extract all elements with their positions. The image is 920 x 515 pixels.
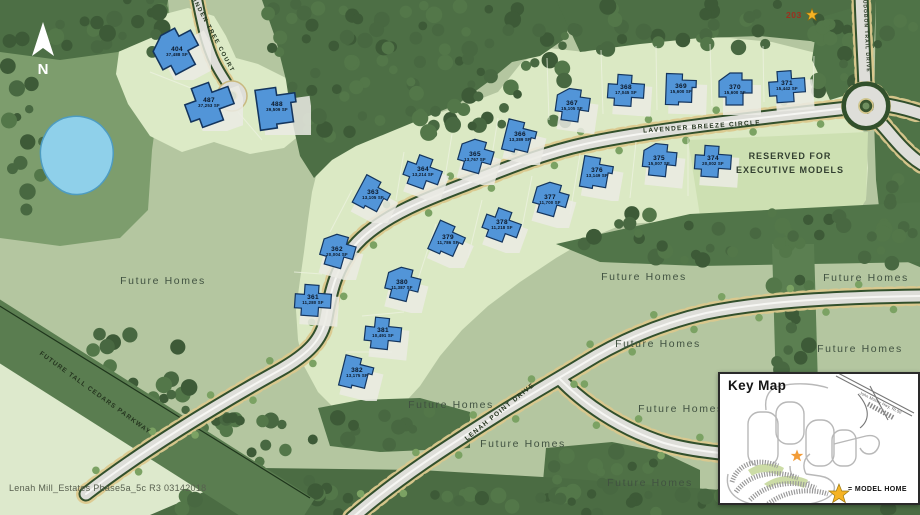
reserved-line1: RESERVED FOR (714, 150, 866, 164)
reserved-line2: EXECUTIVE MODELS (714, 164, 866, 178)
site-plan-map: 40437,488 SF48737,253 SF48839,509 SF3671… (0, 0, 920, 515)
model-home-star-icon (805, 8, 819, 22)
key-map-location-star-icon (791, 450, 804, 462)
key-map-inset: Key Map John Mosby Hwy. Rt.50 = MODEL HO… (718, 372, 920, 505)
roundabout (843, 83, 889, 129)
key-map-title: Key Map (728, 378, 786, 393)
north-arrow: N (28, 22, 58, 100)
north-arrow-icon (30, 22, 56, 58)
model-home-203-label: 203 (786, 10, 802, 20)
plan-caption: Lenah Mill_Estates Phase5a_5c R3 0314201… (9, 483, 206, 493)
linden-culdesac (217, 81, 247, 111)
reserved-area-label: RESERVED FOR EXECUTIVE MODELS (714, 150, 866, 178)
key-map-canvas (720, 374, 918, 503)
model-home-203-marker: 203 (786, 8, 819, 22)
pond (40, 116, 113, 194)
key-map-legend-label: = MODEL HOME (848, 486, 907, 493)
north-letter: N (28, 61, 58, 78)
key-map-legend-star-icon (829, 484, 849, 503)
